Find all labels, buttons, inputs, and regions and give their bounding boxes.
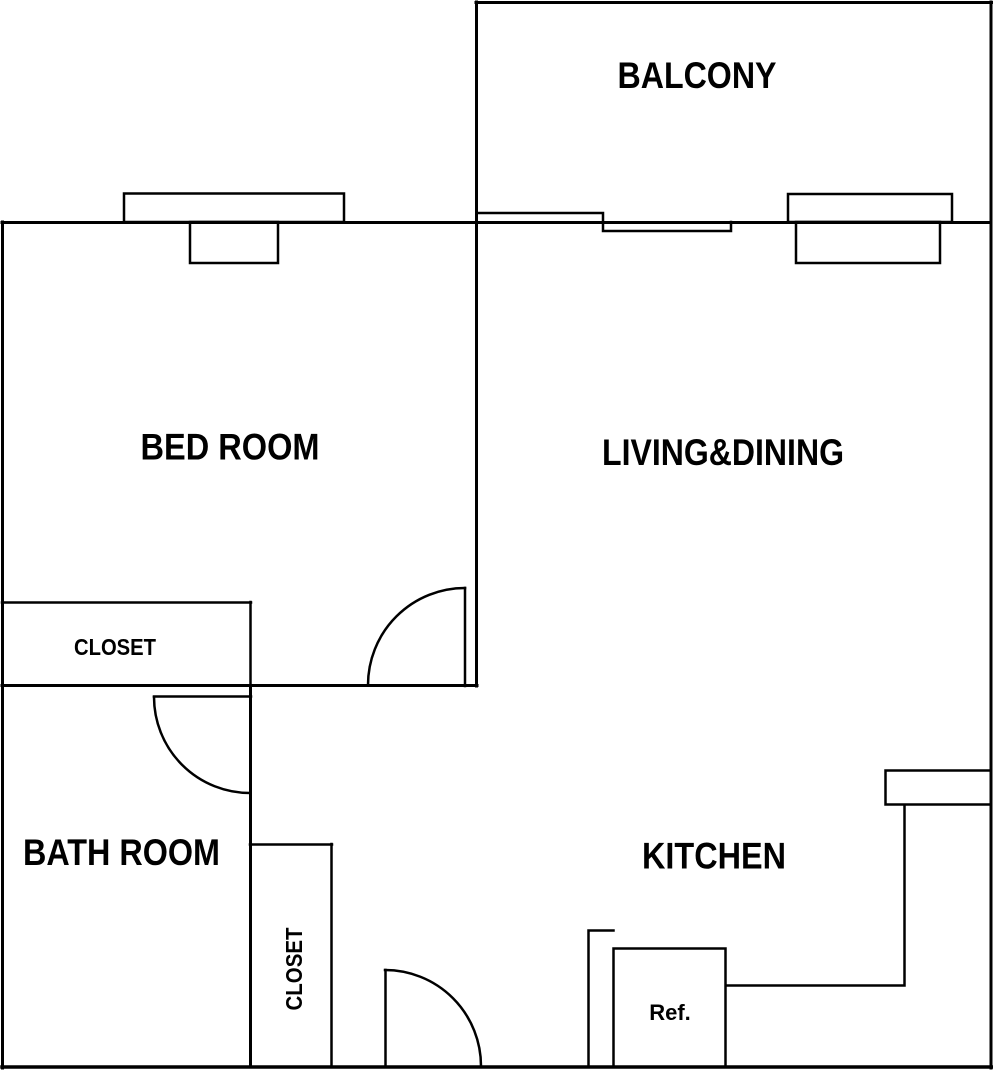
svg-text:BED ROOM: BED ROOM	[141, 427, 320, 468]
svg-text:BATH ROOM: BATH ROOM	[23, 832, 220, 873]
svg-text:CLOSET: CLOSET	[74, 634, 156, 660]
svg-text:BALCONY: BALCONY	[618, 55, 777, 96]
svg-text:CLOSET: CLOSET	[281, 928, 307, 1011]
svg-text:LIVING&DINING: LIVING&DINING	[602, 432, 844, 473]
svg-text:Ref.: Ref.	[649, 1000, 691, 1025]
svg-text:KITCHEN: KITCHEN	[642, 836, 786, 877]
